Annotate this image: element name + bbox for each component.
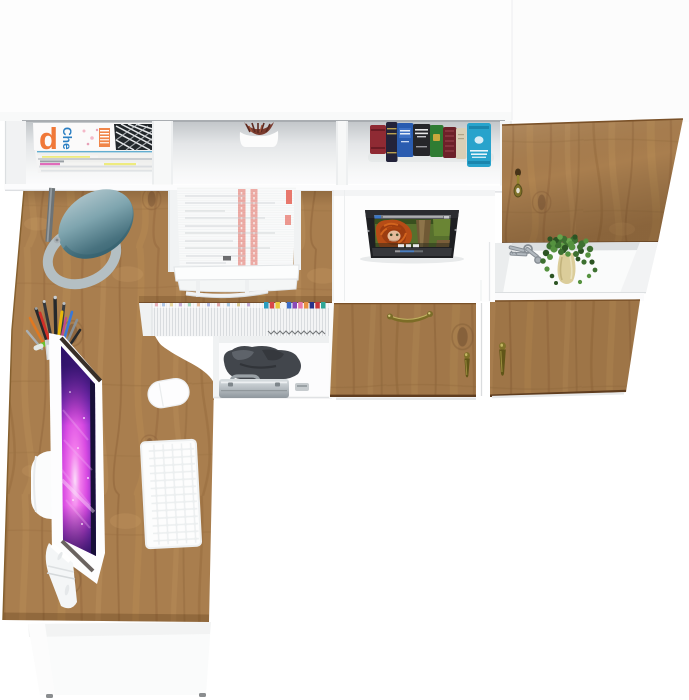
svg-text:d: d [39,121,58,156]
svg-text:Che: Che [60,127,74,150]
